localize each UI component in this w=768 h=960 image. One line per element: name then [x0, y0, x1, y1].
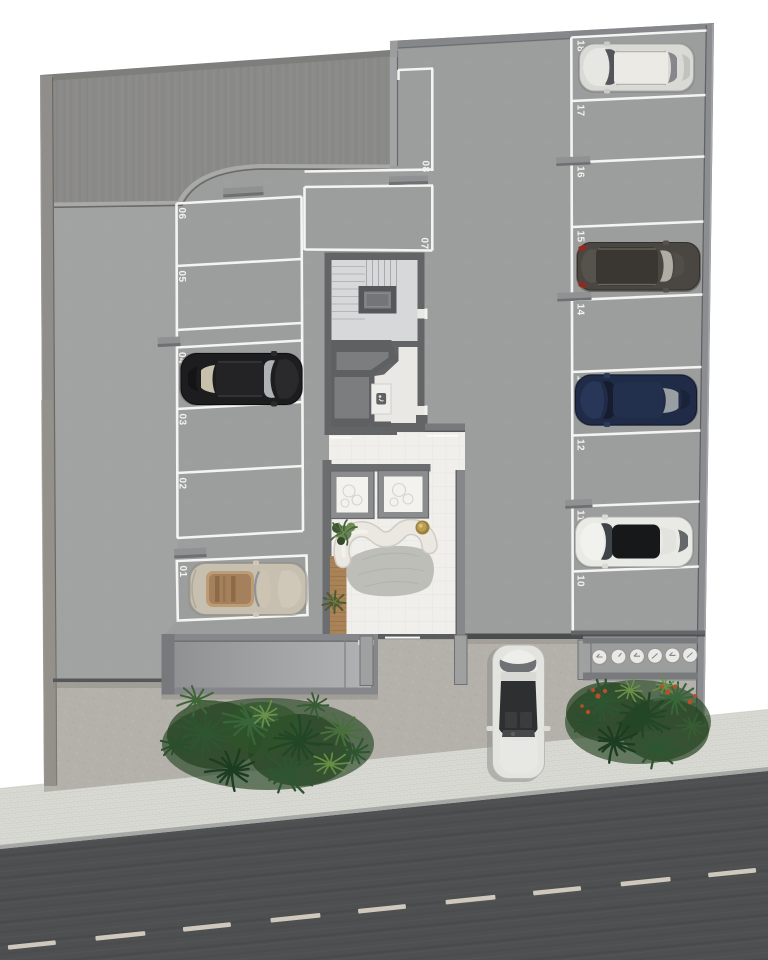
svg-text:14: 14: [575, 304, 586, 316]
svg-text:01: 01: [177, 566, 188, 578]
svg-text:08: 08: [420, 161, 431, 173]
svg-text:15: 15: [575, 231, 586, 243]
svg-text:10: 10: [575, 575, 586, 587]
svg-text:12: 12: [575, 439, 586, 451]
svg-text:02: 02: [177, 478, 188, 490]
svg-text:05: 05: [176, 271, 187, 283]
svg-text:07: 07: [419, 238, 430, 250]
svg-text:16: 16: [575, 166, 586, 178]
svg-text:03: 03: [177, 414, 188, 426]
svg-text:06: 06: [176, 208, 187, 220]
svg-text:17: 17: [575, 105, 586, 117]
